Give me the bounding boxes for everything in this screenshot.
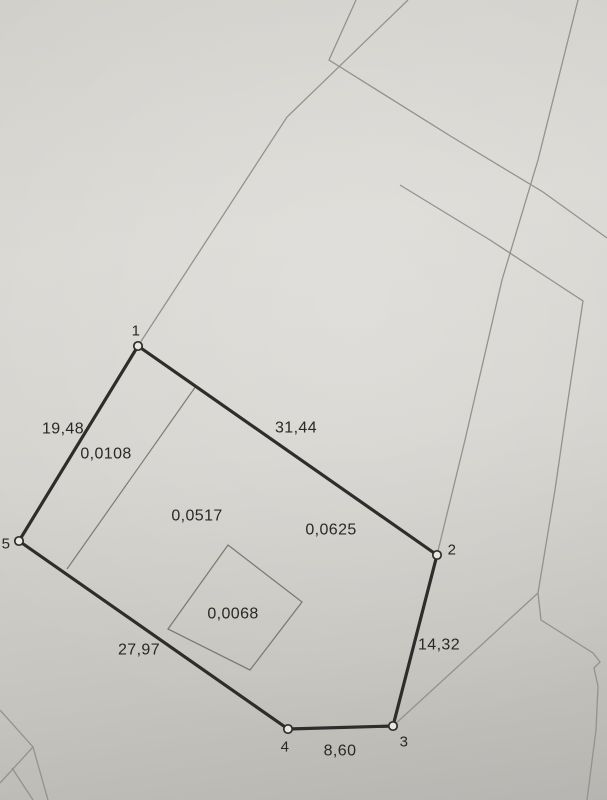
vertex-label-2: 2	[448, 542, 457, 559]
area-label: 0,0068	[207, 606, 258, 623]
parcel-map-svg: 1234519,4831,4414,328,6027,970,01080,051…	[0, 0, 607, 800]
vertex-label-1: 1	[132, 323, 141, 340]
vertex-label-3: 3	[400, 734, 409, 751]
area-label: 0,0108	[80, 446, 131, 463]
neighbor-line-vertex1-corner	[138, 0, 408, 346]
vertex-marker-1	[134, 342, 142, 350]
vertex-marker-5	[15, 537, 23, 545]
area-label: 0,0517	[171, 508, 222, 525]
edge-length-label-1-2: 31,44	[275, 420, 317, 437]
neighbor-line-bottom-left-v	[0, 710, 33, 783]
vertex-marker-2	[433, 551, 441, 559]
neighbor-line-bottom-left-b	[12, 768, 33, 800]
vertex-label-5: 5	[2, 536, 11, 553]
vertex-marker-3	[389, 722, 397, 730]
neighbor-line-to-vertex3	[393, 593, 538, 726]
parcel-boundary	[19, 346, 437, 729]
edge-length-label-3-4: 8,60	[324, 743, 357, 760]
edge-length-label-4-5: 27,97	[118, 642, 160, 659]
edge-length-label-2-3: 14,32	[418, 637, 460, 654]
neighbor-line-through-vertex2	[437, 0, 578, 555]
neighbor-line-bottom-right	[538, 593, 600, 800]
neighbor-line-bottom-left-a	[33, 747, 48, 800]
edge-length-label-5-1: 19,48	[42, 421, 84, 438]
survey-plan-photo: 1234519,4831,4414,328,6027,970,01080,051…	[0, 0, 607, 800]
neighbor-line-corridor-bottom	[400, 185, 583, 593]
area-label: 0,0625	[305, 522, 356, 539]
parcel-divider-line	[67, 386, 196, 569]
vertex-marker-4	[284, 725, 292, 733]
vertex-label-4: 4	[281, 739, 290, 756]
